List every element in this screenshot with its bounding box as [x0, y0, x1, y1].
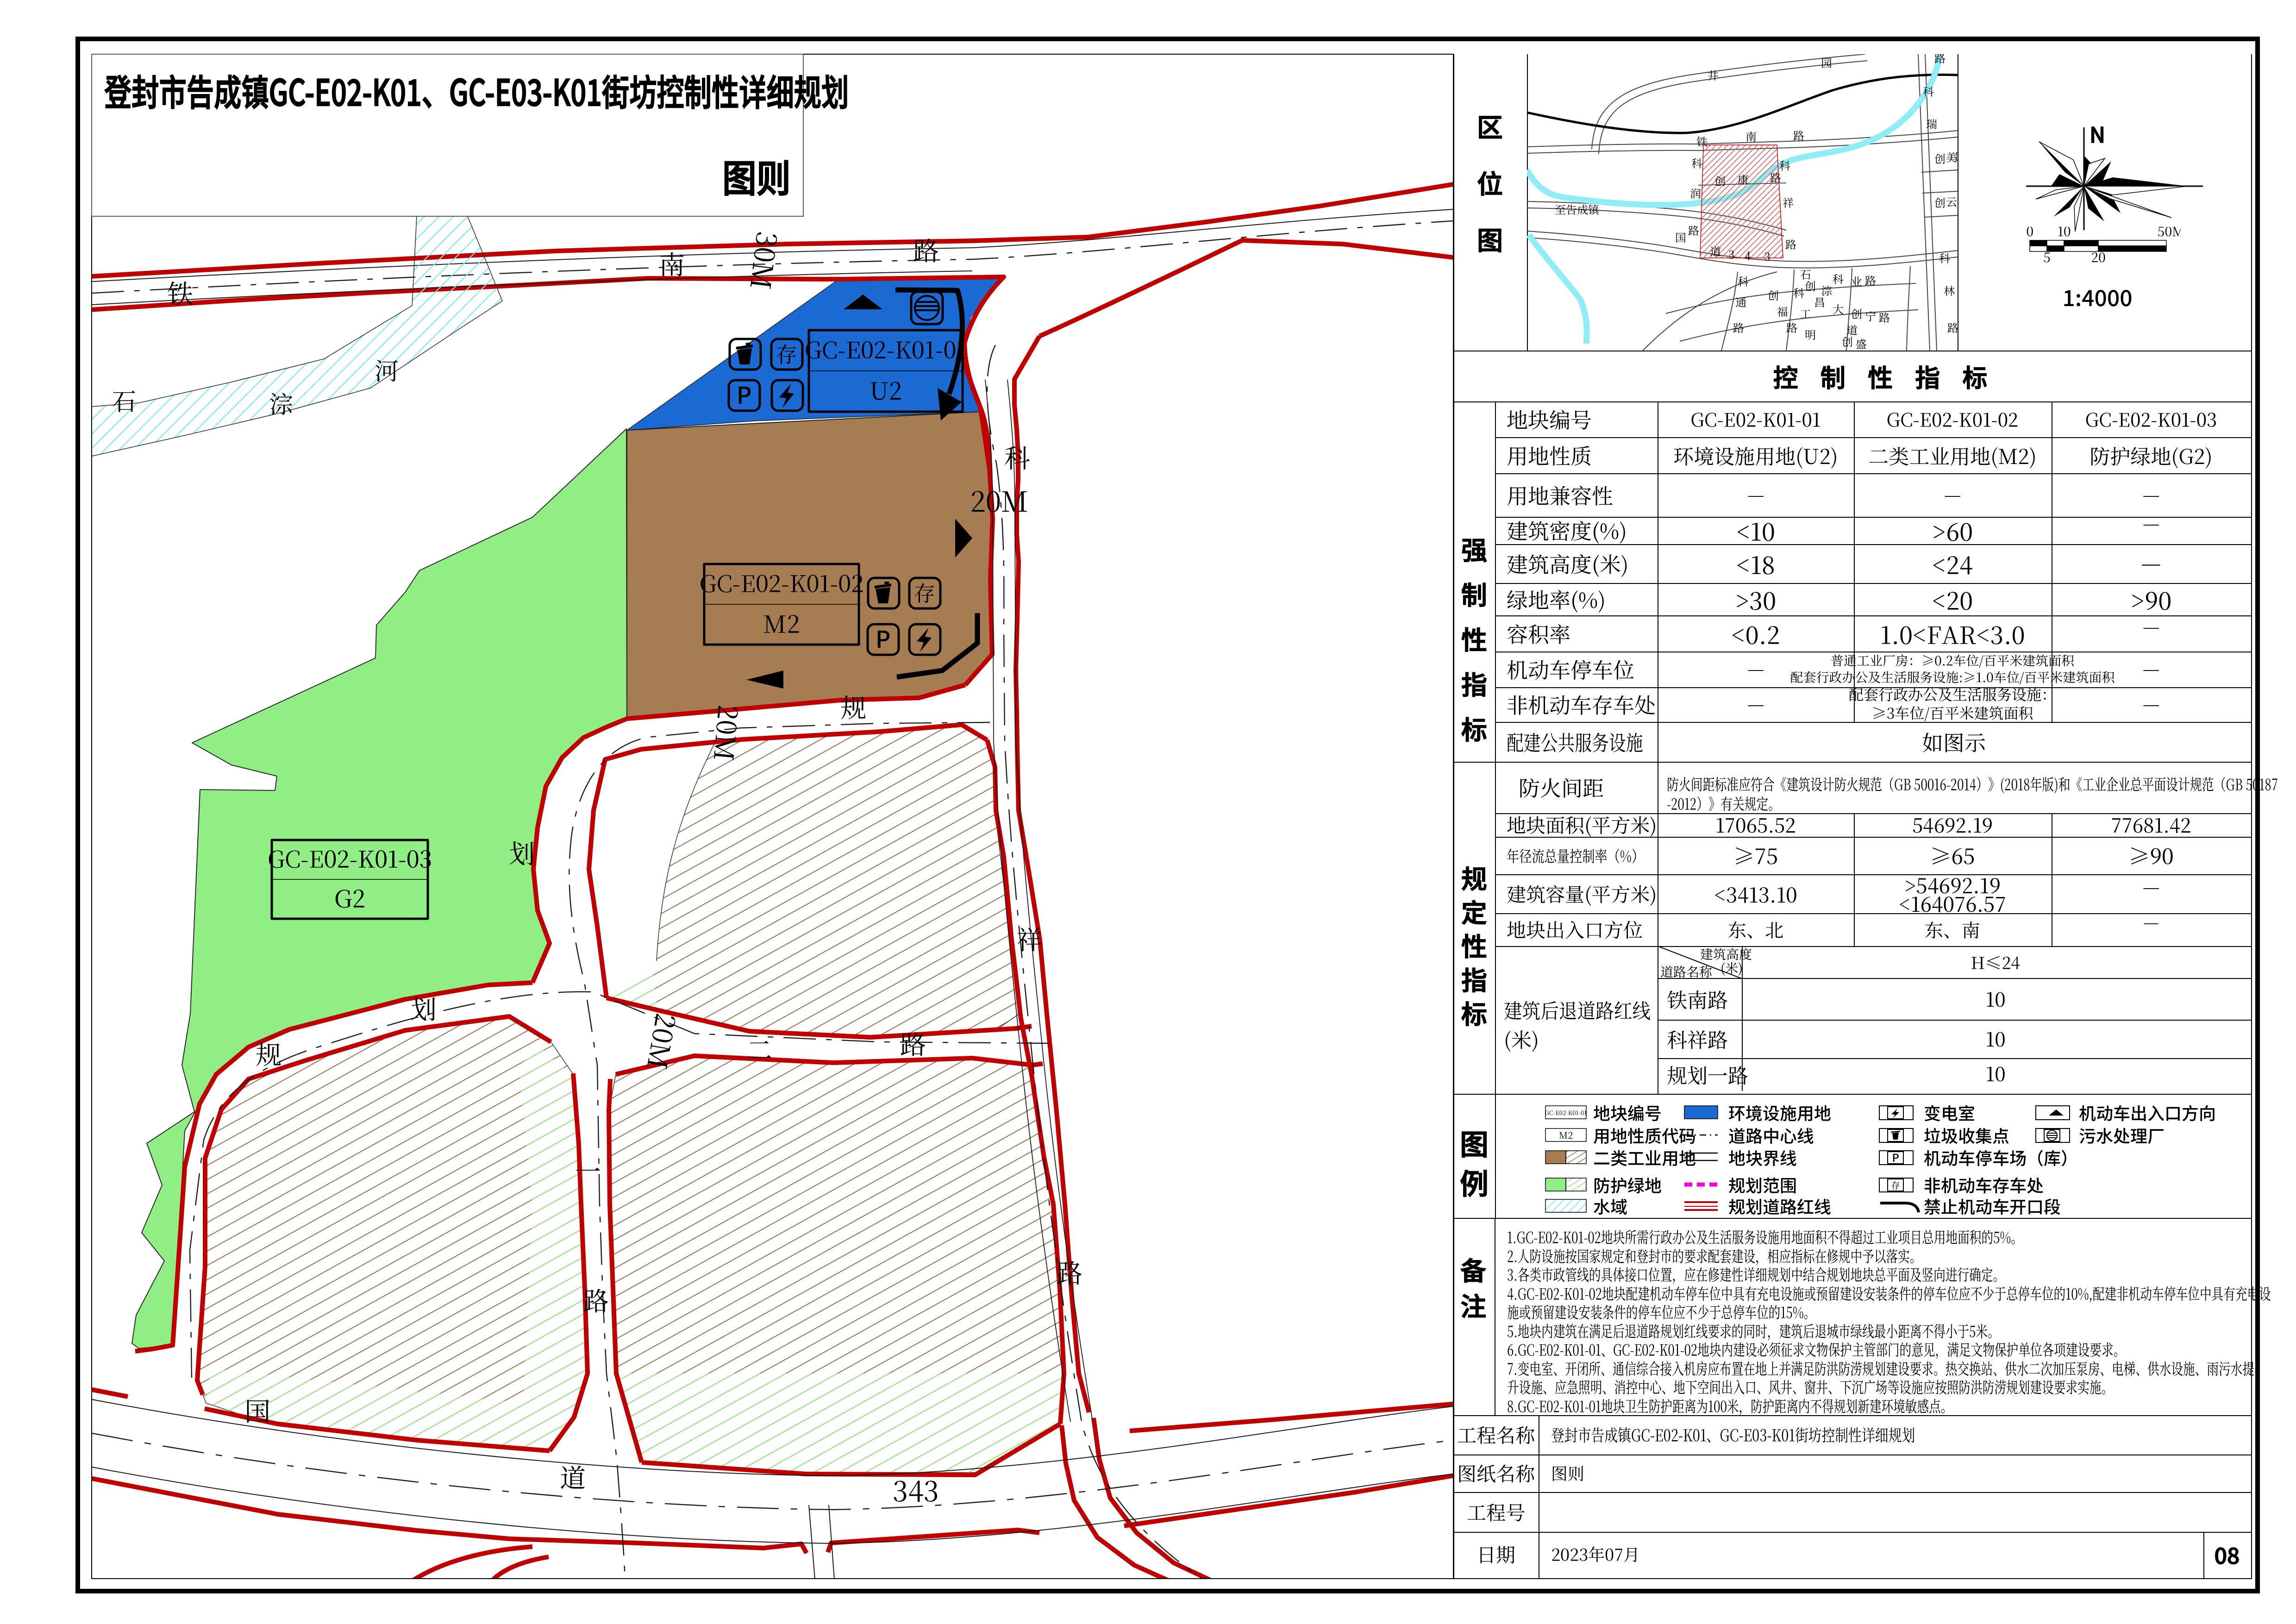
svg-text:淙: 淙 — [269, 385, 293, 420]
svg-text:康: 康 — [1738, 171, 1749, 187]
svg-text:GC-E02-K01-02: GC-E02-K01-02 — [699, 566, 864, 599]
svg-text:存: 存 — [776, 338, 797, 369]
svg-text:瑞: 瑞 — [1926, 115, 1937, 132]
svg-text:路: 路 — [583, 1281, 609, 1318]
svg-text:大: 大 — [1833, 301, 1844, 317]
svg-text:N: N — [2090, 119, 2105, 149]
svg-text:科: 科 — [1939, 250, 1950, 266]
svg-text:创: 创 — [1768, 287, 1779, 303]
svg-text:路: 路 — [1057, 1254, 1082, 1291]
svg-text:科: 科 — [1691, 155, 1702, 171]
svg-text:GC-E02-K01-01: GC-E02-K01-01 — [1545, 1108, 1587, 1117]
svg-text:铁: 铁 — [167, 274, 193, 311]
svg-text:创: 创 — [1934, 150, 1946, 166]
svg-text:南: 南 — [659, 245, 685, 282]
svg-text:一: 一 — [575, 1152, 601, 1189]
svg-text:路: 路 — [1934, 54, 1946, 66]
svg-text:路: 路 — [1786, 319, 1797, 335]
svg-text:国: 国 — [1675, 229, 1686, 245]
svg-text:林: 林 — [1944, 282, 1955, 298]
svg-text:润: 润 — [1690, 185, 1701, 201]
svg-text:20M: 20M — [706, 703, 750, 763]
svg-text:3: 3 — [1728, 246, 1734, 262]
svg-text:道: 道 — [560, 1458, 586, 1495]
svg-text:3: 3 — [1764, 248, 1770, 264]
svg-text:P: P — [876, 621, 890, 655]
svg-text:存: 存 — [914, 577, 935, 608]
svg-text:科: 科 — [1833, 270, 1844, 287]
svg-text:路: 路 — [900, 1025, 926, 1062]
svg-text:4: 4 — [1745, 247, 1751, 263]
svg-text:创: 创 — [1934, 194, 1946, 210]
svg-text:M2: M2 — [763, 605, 800, 640]
svg-text:昌: 昌 — [1814, 294, 1825, 310]
svg-text:20M: 20M — [970, 480, 1028, 520]
svg-text:园: 园 — [1821, 54, 1832, 70]
svg-text:存: 存 — [1891, 1178, 1900, 1191]
svg-text:划: 划 — [509, 834, 535, 871]
svg-text:创: 创 — [1842, 333, 1853, 349]
svg-text:科: 科 — [1738, 273, 1749, 289]
svg-text:GC-E02-K01-03: GC-E02-K01-03 — [268, 841, 432, 875]
svg-text:343: 343 — [893, 1470, 939, 1510]
svg-text:至告成镇: 至告成镇 — [1555, 201, 1599, 217]
svg-text:30M: 30M — [742, 230, 788, 292]
svg-text:划: 划 — [411, 990, 437, 1027]
svg-text:登封市告成镇GC-E02-K01、GC-E03-K01街坊控: 登封市告成镇GC-E02-K01、GC-E03-K01街坊控制性详细规划 — [104, 64, 849, 116]
svg-text:0: 0 — [2026, 227, 2033, 240]
svg-text:云: 云 — [1946, 193, 1957, 209]
svg-text:科: 科 — [1004, 439, 1030, 476]
svg-text:道: 道 — [1710, 243, 1721, 259]
svg-text:盛: 盛 — [1856, 335, 1867, 351]
svg-text:明: 明 — [1805, 326, 1816, 342]
svg-text:业: 业 — [1851, 273, 1862, 289]
svg-text:图则: 图则 — [722, 149, 791, 203]
svg-text:创: 创 — [1851, 305, 1862, 321]
svg-text:路: 路 — [1688, 222, 1699, 238]
svg-text:10: 10 — [2058, 227, 2071, 240]
svg-text:路: 路 — [1955, 148, 1958, 164]
svg-text:路: 路 — [1733, 319, 1744, 335]
svg-text:创: 创 — [1805, 277, 1816, 294]
svg-text:二: 二 — [746, 1030, 772, 1067]
svg-text:南: 南 — [1745, 128, 1757, 144]
svg-text:路: 路 — [1865, 272, 1876, 288]
svg-text:20: 20 — [2091, 248, 2105, 266]
svg-text:路: 路 — [1879, 309, 1890, 325]
svg-text:路: 路 — [913, 231, 939, 268]
svg-text:祥: 祥 — [1783, 194, 1794, 210]
svg-text:铁: 铁 — [1696, 133, 1708, 149]
svg-text:规: 规 — [256, 1035, 282, 1072]
svg-text:创: 创 — [1714, 172, 1726, 188]
svg-text:P: P — [1892, 1149, 1899, 1165]
svg-text:P: P — [737, 377, 751, 411]
svg-text:M2: M2 — [1559, 1128, 1573, 1141]
svg-text:科: 科 — [1923, 83, 1934, 99]
svg-text:路: 路 — [1793, 127, 1804, 143]
svg-text:科: 科 — [1779, 157, 1790, 173]
svg-text:工: 工 — [1800, 305, 1811, 321]
svg-text:G2: G2 — [334, 880, 366, 915]
svg-text:河: 河 — [375, 352, 399, 387]
svg-text:宁: 宁 — [1865, 307, 1876, 324]
svg-text:U2: U2 — [870, 372, 902, 407]
svg-text:福: 福 — [1777, 303, 1788, 319]
svg-text:井: 井 — [1708, 67, 1719, 83]
svg-text:GC-E02-K01-01: GC-E02-K01-01 — [804, 332, 967, 365]
svg-text:50M: 50M — [2158, 227, 2181, 240]
svg-text:石: 石 — [112, 382, 136, 417]
svg-text:规: 规 — [840, 688, 866, 725]
svg-text:通: 通 — [1735, 294, 1746, 310]
svg-text:路: 路 — [1785, 236, 1796, 252]
svg-text:祥: 祥 — [1017, 920, 1043, 957]
svg-text:5: 5 — [2043, 248, 2051, 266]
svg-text:科: 科 — [1793, 284, 1804, 301]
svg-text:路: 路 — [1947, 319, 1958, 335]
svg-text:国: 国 — [244, 1392, 270, 1429]
